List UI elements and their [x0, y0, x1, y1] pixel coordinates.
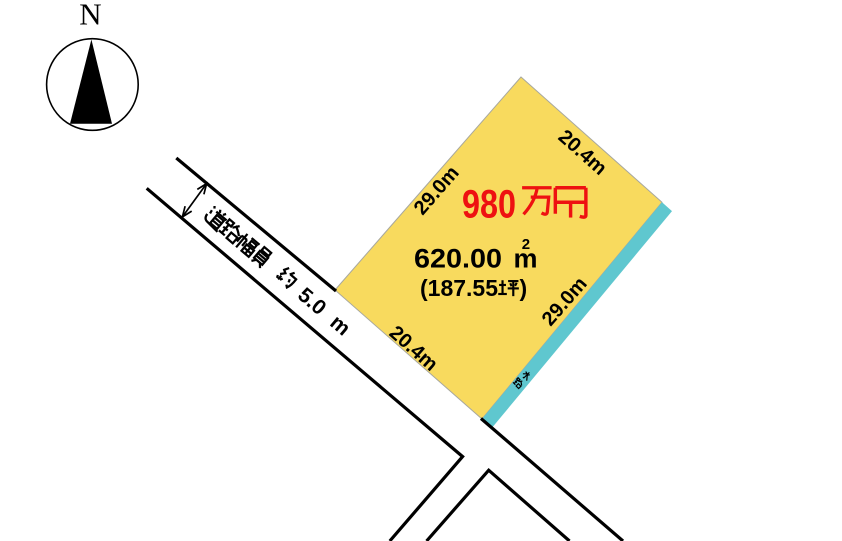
svg-text:): ): [520, 275, 528, 301]
svg-text:980: 980: [462, 183, 516, 227]
svg-text:N: N: [79, 0, 101, 32]
svg-text:620.00: 620.00: [414, 243, 502, 273]
svg-text:2: 2: [522, 236, 530, 253]
svg-text:(187.55: (187.55: [420, 275, 498, 301]
